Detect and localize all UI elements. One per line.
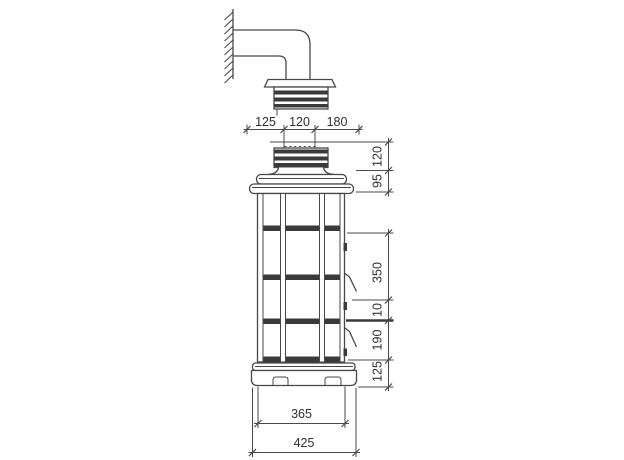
cap-lower-molding (250, 184, 354, 194)
dim-label-125-right: 125 (370, 361, 384, 382)
dim-label-350-right: 350 (370, 262, 384, 283)
dim-label-120-right: 120 (370, 146, 384, 167)
stove-body (258, 194, 357, 363)
dim-label-190-right: 190 (370, 330, 384, 351)
wall-bracket (225, 9, 234, 83)
dim-label-95-right: 95 (370, 174, 384, 188)
dim-label-10-right: 10 (370, 303, 384, 317)
stove-technical-drawing: 125 120 180 (0, 0, 624, 460)
pipe-inner-line (234, 56, 287, 80)
hinge-mark (344, 302, 348, 310)
stove-flue-collar (268, 147, 335, 175)
hinge-mark (344, 243, 348, 251)
technical-drawing-page: 125 120 180 (0, 0, 624, 460)
cap-upper-molding (257, 175, 347, 185)
wall-hatch-marks (225, 12, 234, 83)
dim-label-180-top: 180 (327, 115, 348, 129)
wall-flue-collar (265, 80, 336, 116)
dim-label-365-bottom: 365 (291, 407, 312, 421)
flue-pipe-elbow (234, 30, 311, 80)
dim-label-425-bottom: 425 (294, 436, 315, 450)
hinge-mark (344, 349, 348, 357)
pipe-outer-line (234, 30, 311, 80)
door-handle-upper (345, 274, 357, 292)
dimension-bottom-body-width: 365 (254, 387, 349, 429)
dimension-bottom-base-width: 425 (249, 388, 361, 458)
dim-label-125-top: 125 (255, 115, 276, 129)
stove-base (252, 363, 357, 386)
dim-label-120-top: 120 (289, 115, 310, 129)
collar-neck (268, 168, 335, 175)
door-handle-lower (345, 328, 357, 347)
stove-cap (250, 175, 354, 194)
collar-flange (265, 80, 336, 88)
